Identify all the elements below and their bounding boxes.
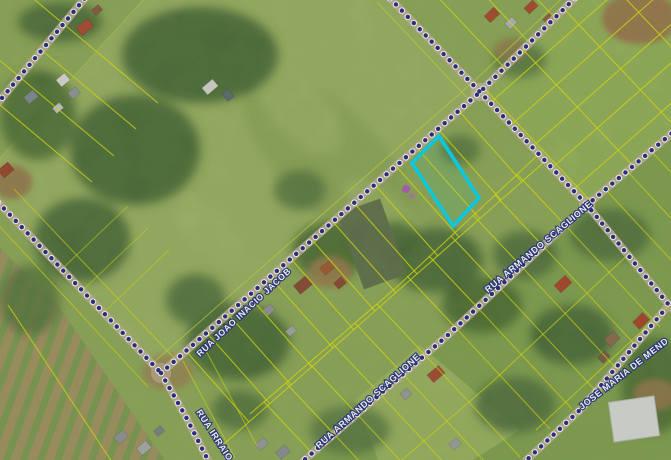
satellite-map: RUA JOAO INACIO JACOB RUA ARMANDO SCAGLI… — [0, 0, 671, 460]
photo-grain-overlay — [0, 0, 671, 460]
satellite-map-viewport[interactable]: RUA JOAO INACIO JACOB RUA ARMANDO SCAGLI… — [0, 0, 671, 460]
